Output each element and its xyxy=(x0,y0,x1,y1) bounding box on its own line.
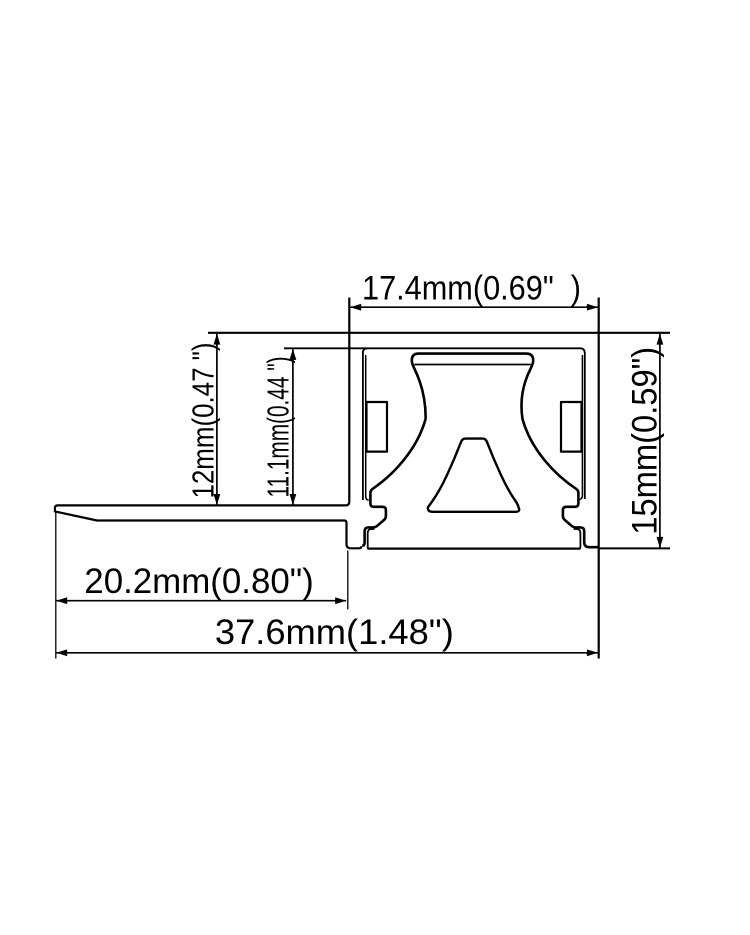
svg-text:15mm(0.59"): 15mm(0.59") xyxy=(626,347,665,535)
svg-text:11.1mm(0.44 "): 11.1mm(0.44 ") xyxy=(261,357,296,498)
svg-text:17.4mm(0.69" ): 17.4mm(0.69" ) xyxy=(362,269,581,307)
svg-text:37.6mm(1.48"): 37.6mm(1.48") xyxy=(215,613,454,652)
svg-text:20.2mm(0.80"): 20.2mm(0.80") xyxy=(84,562,313,601)
svg-text:12mm(0.47 "): 12mm(0.47 ") xyxy=(186,343,221,499)
